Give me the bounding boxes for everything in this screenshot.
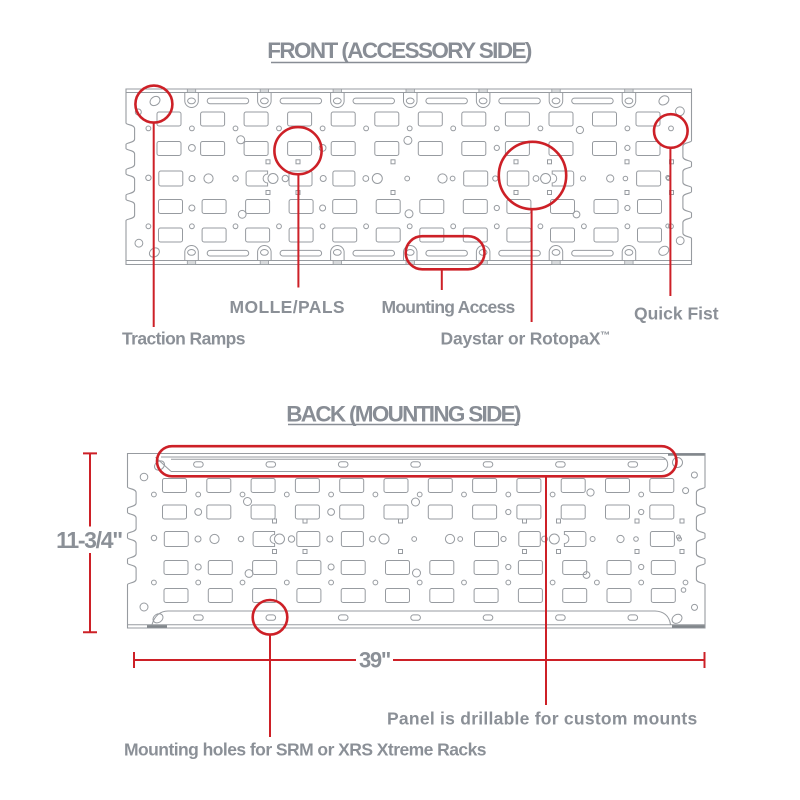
svg-text:Daystar or RotopaX™: Daystar or RotopaX™ <box>441 329 611 349</box>
svg-text:FRONT (ACCESSORY SIDE): FRONT (ACCESSORY SIDE) <box>267 38 532 63</box>
svg-text:Quick Fist: Quick Fist <box>634 304 719 324</box>
svg-text:11-3/4": 11-3/4" <box>56 527 122 553</box>
svg-text:Panel is drillable for custom: Panel is drillable for custom mounts <box>387 709 697 729</box>
svg-text:Mounting holes for SRM or XRS: Mounting holes for SRM or XRS Xtreme Rac… <box>124 740 487 760</box>
svg-text:Traction Ramps: Traction Ramps <box>122 329 246 349</box>
svg-text:MOLLE/PALS: MOLLE/PALS <box>230 297 345 317</box>
svg-text:39": 39" <box>359 648 390 673</box>
svg-text:BACK (MOUNTING SIDE): BACK (MOUNTING SIDE) <box>286 402 521 427</box>
svg-text:Mounting Access: Mounting Access <box>382 297 516 317</box>
